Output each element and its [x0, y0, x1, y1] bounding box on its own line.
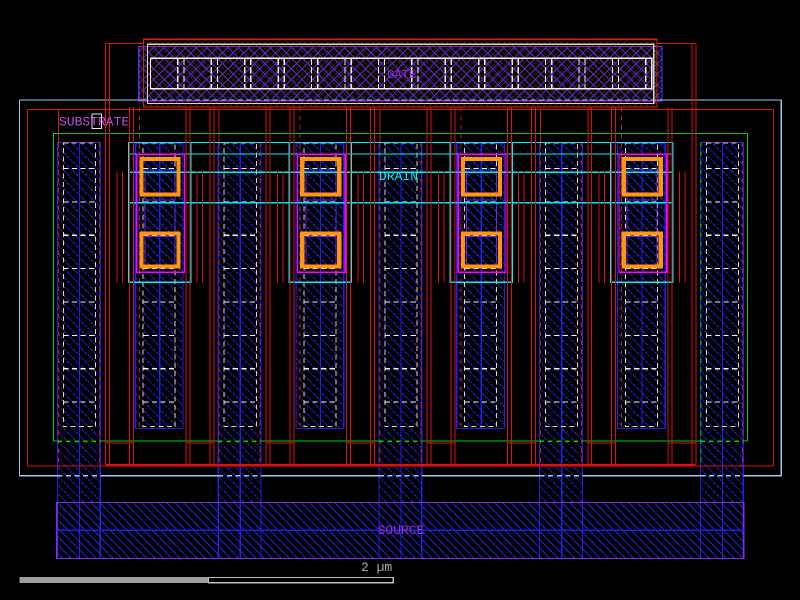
- svg-text:2 µm: 2 µm: [361, 560, 392, 575]
- svg-text:GATE: GATE: [387, 68, 416, 82]
- svg-text:SUBSTRATE: SUBSTRATE: [59, 115, 129, 130]
- svg-text:DRAIN: DRAIN: [379, 169, 418, 184]
- svg-text:SOURCE: SOURCE: [378, 523, 425, 538]
